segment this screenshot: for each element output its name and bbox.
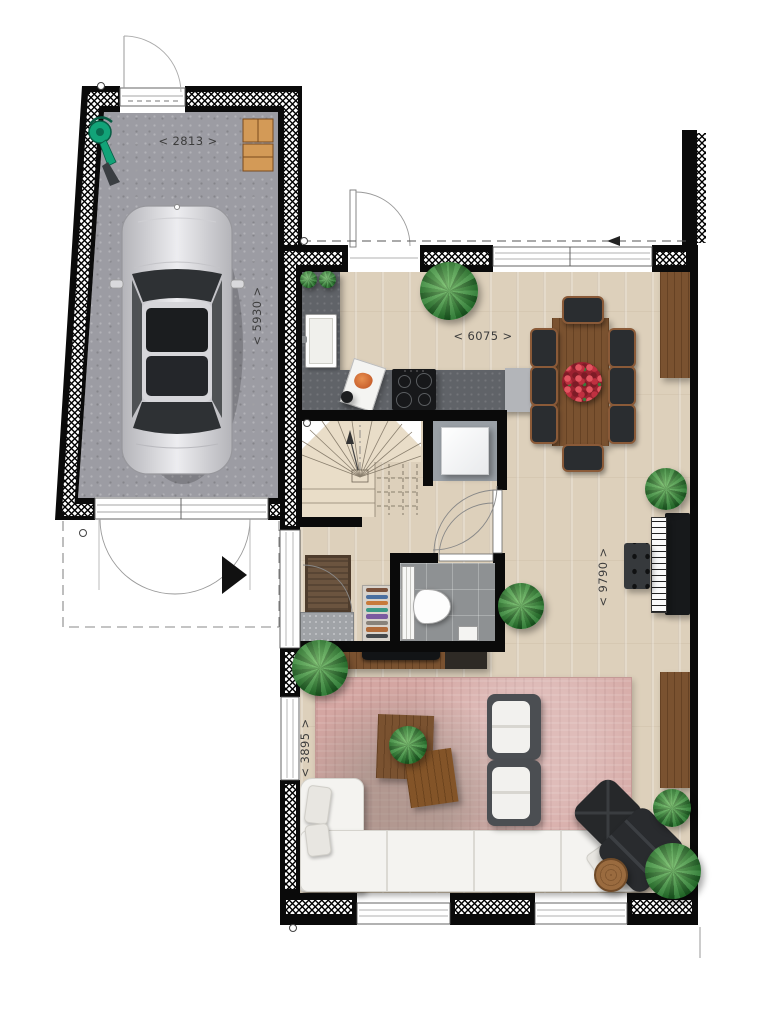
direction-arrow-icon <box>607 236 620 246</box>
kitchen-sink <box>305 314 337 368</box>
dimension-living-width: < 3895 > <box>298 706 312 790</box>
plant-icon <box>300 271 317 288</box>
plant-icon <box>498 583 544 629</box>
plant-icon <box>319 271 336 288</box>
television <box>362 647 440 660</box>
plant-icon <box>389 726 427 764</box>
dining-chair <box>530 404 558 444</box>
dining-chair <box>530 328 558 368</box>
shoe-icon <box>366 608 388 612</box>
plant-icon <box>292 640 348 696</box>
burner-icon <box>396 392 412 408</box>
pillow <box>304 823 332 858</box>
plant-icon <box>645 468 687 510</box>
dimension-kitchen-width: < 6075 > <box>441 329 525 343</box>
driveway-outline <box>63 521 279 627</box>
shoe-icon <box>366 601 388 605</box>
plant-icon <box>653 789 691 827</box>
piano-bench <box>624 543 650 589</box>
armchair-cushion <box>492 701 530 753</box>
entry-mat <box>300 612 354 642</box>
dimension-living-depth: < 9790 > <box>596 535 610 619</box>
armchair-cushion <box>492 767 530 819</box>
sideboard <box>660 268 690 378</box>
plant-icon <box>645 843 701 899</box>
dining-chair <box>562 444 604 472</box>
garage-concrete-floor <box>78 112 278 498</box>
dining-chair <box>562 296 604 324</box>
piano <box>665 513 690 615</box>
sink-faucet <box>299 336 307 343</box>
kitchen-bowl <box>341 391 353 403</box>
plant-icon <box>420 262 478 320</box>
entrance-arrow-icon <box>222 556 247 594</box>
kitchen-tall-cabinet <box>505 368 531 412</box>
dining-chair <box>608 404 636 444</box>
tv-cabinet-dark-section <box>445 643 487 669</box>
shoe-icon <box>366 614 388 618</box>
armchair <box>487 760 541 826</box>
shoe-icon <box>366 595 388 599</box>
dimension-garage-width: < 2813 > <box>146 134 230 148</box>
shoe-icon <box>366 588 388 592</box>
round-side-table <box>594 858 628 892</box>
dining-chair <box>530 366 558 406</box>
burner-icon <box>416 373 432 389</box>
flower-centerpiece <box>562 362 602 402</box>
shoe-rack <box>362 585 392 645</box>
shoe-icon <box>366 634 388 638</box>
dimension-garage-depth: < 5930 > <box>250 274 264 358</box>
burner-icon <box>398 375 411 388</box>
doormat <box>305 555 351 613</box>
dining-chair <box>608 366 636 406</box>
toilet-flush-plate <box>458 626 478 641</box>
cooktop <box>392 369 436 410</box>
sink-basin <box>309 318 333 364</box>
shoe-icon <box>366 627 388 631</box>
dining-chair <box>608 328 636 368</box>
sideboard <box>660 672 690 788</box>
floor-plan: < 2813 > < 5930 > < 6075 > < 9790 > < 38… <box>0 0 768 1024</box>
shoe-icon <box>366 621 388 625</box>
washing-machine <box>441 427 489 475</box>
burner-icon <box>418 393 431 406</box>
piano-keys <box>651 517 667 613</box>
armchair <box>487 694 541 760</box>
